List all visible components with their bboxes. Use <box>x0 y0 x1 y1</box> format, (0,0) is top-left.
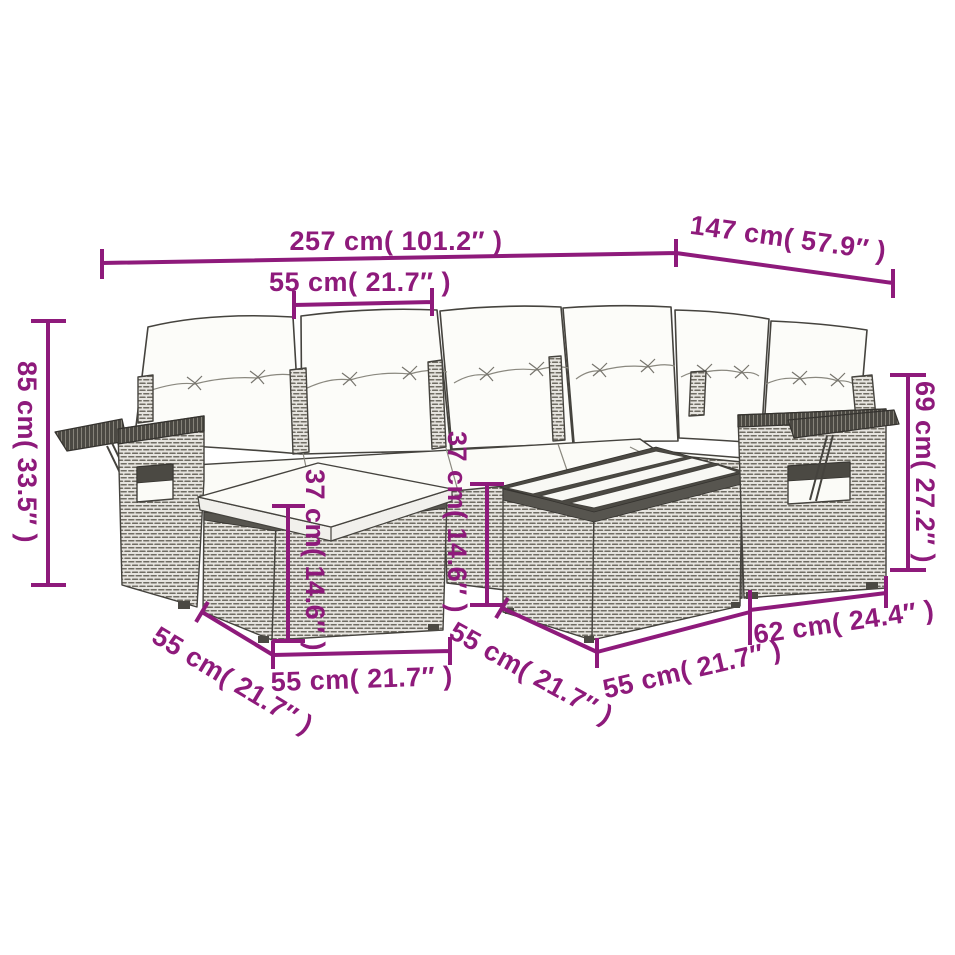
dim-footstool-height-label: 37 cm( 14.6″ ) <box>300 469 330 651</box>
dim-footstool-width: 55 cm( 21.7″ ) <box>270 637 453 697</box>
diagram-canvas: 257 cm( 101.2″ ) 147 cm( 57.9″ ) 55 cm( … <box>0 0 955 955</box>
dim-footstool-width-label: 55 cm( 21.7″ ) <box>270 661 453 697</box>
dim-total-width-label: 257 cm( 101.2″ ) <box>289 226 502 256</box>
dim-arm-height: 69 cm( 27.2″ ) <box>890 375 940 570</box>
frame-post <box>689 371 706 416</box>
frame-post <box>138 375 153 423</box>
dim-seat-width-label: 55 cm( 21.7″ ) <box>269 267 451 297</box>
left-armrest-foot <box>178 601 190 609</box>
frame-post <box>290 368 309 454</box>
left-armrest-body <box>118 416 204 607</box>
dim-arm-height-label: 69 cm( 27.2″ ) <box>910 381 940 563</box>
left-armrest <box>55 416 204 609</box>
dimension-diagram: 257 cm( 101.2″ ) 147 cm( 57.9″ ) 55 cm( … <box>0 0 955 955</box>
right-armrest-body <box>738 409 886 598</box>
table-foot <box>731 602 740 608</box>
dim-armrest-section-depth-label: 62 cm( 24.4″ ) <box>752 595 936 650</box>
right-armrest <box>738 409 899 599</box>
table-foot <box>584 636 594 643</box>
footstool-foot <box>258 636 269 643</box>
back-pillow-4 <box>563 306 678 443</box>
left-armrest-slot-band <box>137 464 173 483</box>
footstool-foot <box>428 624 439 631</box>
right-armrest-foot <box>866 582 878 589</box>
dim-table-height-label: 37 cm( 14.6″ ) <box>442 431 472 613</box>
dim-back-height: 85 cm( 33.5″ ) <box>12 321 66 585</box>
left-tray <box>55 419 127 451</box>
dim-back-height-label: 85 cm( 33.5″ ) <box>12 361 42 543</box>
sofa-set-illustration <box>55 306 899 643</box>
dim-total-depth: 147 cm( 57.9″ ) <box>676 210 893 298</box>
